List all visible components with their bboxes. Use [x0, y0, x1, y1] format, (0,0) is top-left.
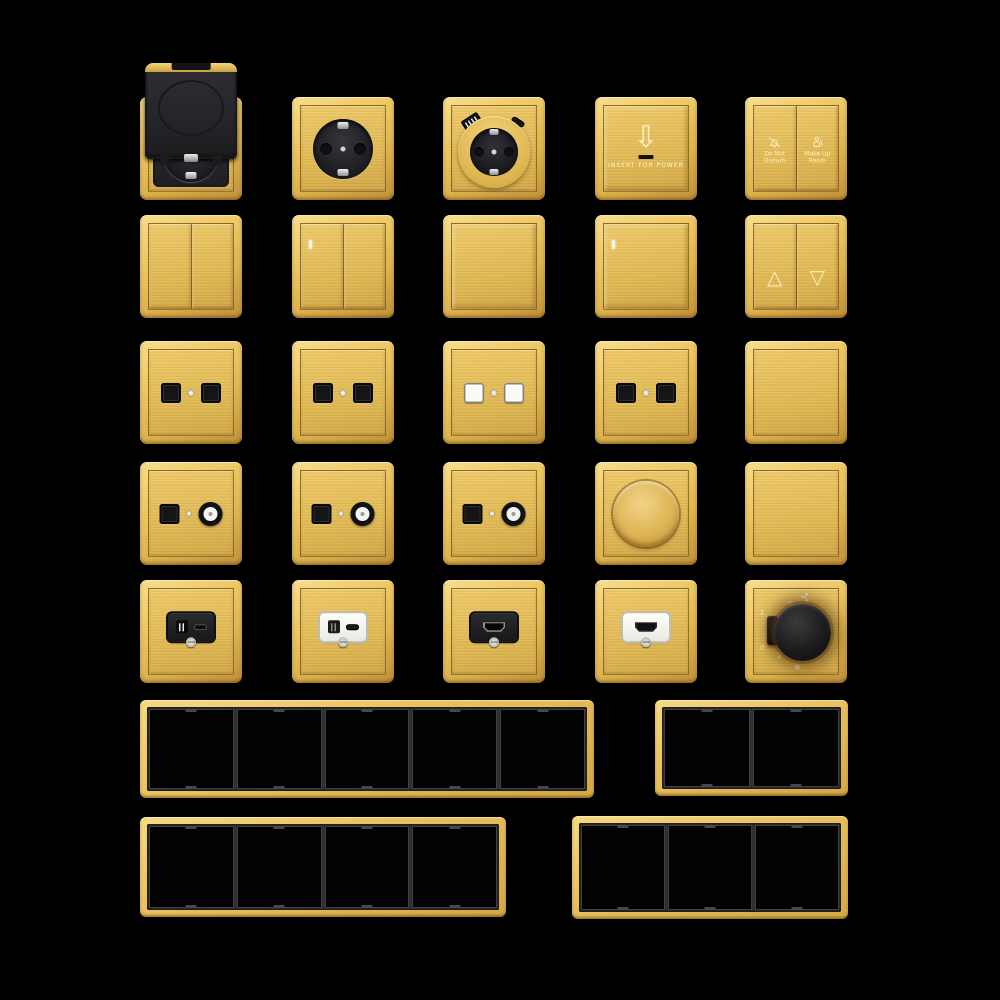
frame-opening [412, 826, 497, 908]
plate-face [451, 105, 537, 192]
hdmi-port[interactable] [483, 622, 505, 632]
mur-rocker[interactable]: Make Up Room [796, 106, 839, 191]
socket-hole [474, 147, 484, 157]
hdmi-opening [485, 623, 504, 631]
usb-charger-socket-white[interactable] [292, 580, 394, 683]
socket-hole [320, 143, 332, 155]
off-label: 0 [760, 645, 764, 652]
gold-plate [595, 462, 697, 565]
screw [188, 390, 194, 396]
rotary-dimmer[interactable] [595, 462, 697, 565]
frame-opening [325, 826, 410, 908]
plate-face [603, 470, 689, 557]
gold-plate: △ ▽ [745, 215, 847, 318]
frame-inner [579, 823, 841, 912]
arrow-down-icon: ⇩ [633, 123, 658, 153]
indicator-led [309, 240, 312, 249]
coax-pin [209, 512, 213, 516]
earth-clip [338, 122, 349, 129]
fan-speed-controller[interactable]: 5 4 3 2 ❄ 1 0 [745, 580, 847, 683]
schuko-outlet [470, 128, 518, 176]
coax-port[interactable] [199, 502, 223, 526]
gold-plate [595, 215, 697, 318]
data-tv-socket[interactable] [292, 462, 394, 565]
gold-plate [292, 462, 394, 565]
mur-label: Make Up Room [799, 152, 835, 166]
dnd-block: Do Not Disturb [757, 135, 793, 166]
earth-clip [186, 172, 197, 179]
earth-clip [490, 169, 499, 175]
plate-face [603, 588, 689, 675]
frame-opening [149, 826, 234, 908]
cover-notch [172, 63, 211, 70]
data-port[interactable] [160, 504, 180, 524]
data-port[interactable] [313, 383, 333, 403]
earth-clip [338, 169, 349, 176]
gold-plate [443, 215, 545, 318]
port-group [616, 383, 676, 403]
screw [340, 390, 346, 396]
gold-plate [595, 580, 697, 683]
coax-port[interactable] [502, 502, 526, 526]
frame-2-gang[interactable] [655, 700, 848, 796]
plate-face [451, 349, 537, 436]
dual-data-socket-black[interactable] [140, 341, 242, 444]
key-card-slot-face[interactable]: ⇩ INSERT FOR POWER [603, 105, 689, 192]
socket-pin [341, 146, 346, 151]
port-group [312, 502, 375, 526]
hdmi-socket-white[interactable] [595, 580, 697, 683]
rocker[interactable] [451, 223, 537, 310]
plate-face [148, 223, 234, 310]
cover-seal [158, 80, 224, 136]
plate-face [300, 588, 386, 675]
plate-face [451, 588, 537, 675]
plate-face [148, 588, 234, 675]
data-port[interactable] [161, 383, 181, 403]
screw [490, 511, 495, 516]
socket-hole [354, 143, 366, 155]
coax-port[interactable] [351, 502, 375, 526]
data-tv-socket[interactable] [443, 462, 545, 565]
schuko-usb-socket[interactable] [443, 97, 545, 200]
gold-plate: 5 4 3 2 ❄ 1 0 [745, 580, 847, 683]
curtain-down-rocker[interactable]: ▽ [796, 224, 839, 309]
schuko-outlet [313, 119, 373, 179]
coax-pin [512, 512, 516, 516]
port-group [161, 383, 221, 403]
frame-4-gang[interactable] [140, 817, 506, 917]
module-group [471, 613, 517, 647]
schuko-socket[interactable] [292, 97, 394, 200]
flip-cover-socket[interactable] [140, 63, 242, 200]
port-group [463, 502, 526, 526]
frame-opening [664, 709, 750, 787]
screw [489, 637, 499, 647]
data-port[interactable] [312, 504, 332, 524]
gold-plate [443, 462, 545, 565]
module-group [623, 613, 669, 647]
port-group [160, 502, 223, 526]
gold-plate [443, 580, 545, 683]
frame-3-gang[interactable] [572, 816, 848, 919]
frame-opening [755, 825, 839, 910]
gold-plate [292, 341, 394, 444]
maid-icon [810, 135, 825, 150]
frame-5-gang[interactable] [140, 700, 594, 798]
double-rocker-switch-led[interactable] [292, 215, 394, 318]
frame-inner [662, 707, 841, 789]
plate-face [148, 470, 234, 557]
usb-c-port[interactable] [346, 624, 359, 630]
cover-hinge [213, 155, 222, 165]
frame-opening [668, 825, 752, 910]
data-port[interactable] [463, 504, 483, 524]
dnd-rocker[interactable]: Do Not Disturb [754, 106, 796, 191]
data-port[interactable] [504, 383, 524, 403]
product-sheet: ⇩ INSERT FOR POWER Do Not Disturb [0, 0, 1000, 1000]
hdmi-socket-black[interactable] [443, 580, 545, 683]
double-rocker-switch[interactable] [140, 215, 242, 318]
triangle-up-icon: △ [767, 267, 782, 287]
curtain-switch[interactable]: △ ▽ [745, 215, 847, 318]
screw [187, 511, 192, 516]
data-port[interactable] [353, 383, 373, 403]
usb-a-port[interactable] [176, 620, 188, 633]
hdmi-port[interactable] [635, 622, 657, 632]
bell-slash-icon [767, 135, 782, 150]
plate-face [753, 470, 839, 557]
module-group [320, 613, 366, 647]
gold-plate [140, 215, 242, 318]
gold-plate [595, 341, 697, 444]
plate-face [300, 470, 386, 557]
frame-opening [237, 709, 322, 789]
gold-plate: Do Not Disturb Make Up Room [745, 97, 847, 200]
gold-plate [443, 341, 545, 444]
port-group [313, 383, 373, 403]
data-port[interactable] [201, 383, 221, 403]
cover-hinge [160, 155, 169, 165]
indicator-led [612, 240, 615, 249]
screw [641, 637, 651, 647]
triangle-down-icon: ▽ [810, 267, 825, 287]
frame-inner [147, 707, 587, 791]
hdmi-opening [637, 623, 656, 631]
frame-opening [500, 709, 585, 789]
screw [491, 390, 497, 396]
data-port[interactable] [656, 383, 676, 403]
gold-plate [140, 341, 242, 444]
plate-face [603, 349, 689, 436]
snowflake-icon: ❄ [794, 664, 801, 672]
blank-plate[interactable] [745, 341, 847, 444]
plate-face [300, 223, 386, 310]
mur-block: Make Up Room [799, 135, 835, 166]
frame-opening [753, 709, 839, 787]
dual-data-socket-black[interactable] [595, 341, 697, 444]
speed-2-label: 2 [777, 653, 781, 660]
key-card-power-switch[interactable]: ⇩ INSERT FOR POWER [595, 97, 697, 200]
blank-plate[interactable] [745, 462, 847, 565]
gold-plate: ⇩ INSERT FOR POWER [595, 97, 697, 200]
plate-face: Do Not Disturb Make Up Room [753, 105, 839, 192]
port-group [464, 383, 524, 403]
gold-plate [292, 97, 394, 200]
screw [339, 511, 344, 516]
screw [338, 637, 348, 647]
hotel-service-switch[interactable]: Do Not Disturb Make Up Room [745, 97, 847, 200]
plate-face: △ ▽ [753, 223, 839, 310]
gold-plate [292, 580, 394, 683]
plate-face [753, 349, 839, 436]
dimmer-knob[interactable] [613, 481, 679, 547]
gold-plate [140, 462, 242, 565]
data-port[interactable] [464, 383, 484, 403]
fan-knob[interactable] [774, 604, 831, 661]
frame-opening [325, 709, 410, 789]
usb-a-port[interactable] [328, 620, 340, 633]
rocker[interactable] [603, 223, 689, 310]
socket-hole [504, 147, 514, 157]
key-card-label: INSERT FOR POWER [604, 162, 688, 169]
coax-pin [361, 512, 365, 516]
data-tv-socket[interactable] [140, 462, 242, 565]
flip-cover[interactable] [145, 63, 237, 159]
frame-opening [237, 826, 322, 908]
rocker-right[interactable] [343, 224, 386, 309]
plate-face [148, 349, 234, 436]
curtain-up-rocker[interactable]: △ [754, 224, 796, 309]
data-port[interactable] [616, 383, 636, 403]
plate-face [300, 105, 386, 192]
screw [186, 637, 196, 647]
frame-opening [581, 825, 665, 910]
plate-face [451, 470, 537, 557]
gold-plate [745, 462, 847, 565]
frame-inner [147, 824, 499, 910]
module-group [168, 613, 214, 647]
rocker-right[interactable] [191, 224, 234, 309]
fan-icon [799, 591, 812, 604]
socket-pin [492, 149, 497, 154]
gold-plate [140, 580, 242, 683]
cover-clasp [184, 154, 198, 162]
gold-plate [443, 97, 545, 200]
gold-plate [745, 341, 847, 444]
rocker-left[interactable] [149, 224, 191, 309]
rocker-left[interactable] [301, 224, 343, 309]
earth-clip [490, 129, 499, 135]
single-rocker-switch-led[interactable] [595, 215, 697, 318]
on-label: 1 [760, 610, 764, 617]
plate-face: 5 4 3 2 ❄ 1 0 [753, 588, 839, 675]
plate-face [300, 349, 386, 436]
dnd-label: Do Not Disturb [757, 152, 793, 166]
gold-plate [292, 215, 394, 318]
card-slot[interactable] [639, 155, 654, 159]
frame-opening [149, 709, 234, 789]
screw [643, 390, 649, 396]
socket-ring [458, 116, 530, 188]
usb-c-port[interactable] [194, 624, 207, 630]
usb-charger-socket-black[interactable] [140, 580, 242, 683]
dual-data-socket-white[interactable] [443, 341, 545, 444]
frame-opening [412, 709, 497, 789]
single-rocker-switch[interactable] [443, 215, 545, 318]
dual-data-socket-black[interactable] [292, 341, 394, 444]
